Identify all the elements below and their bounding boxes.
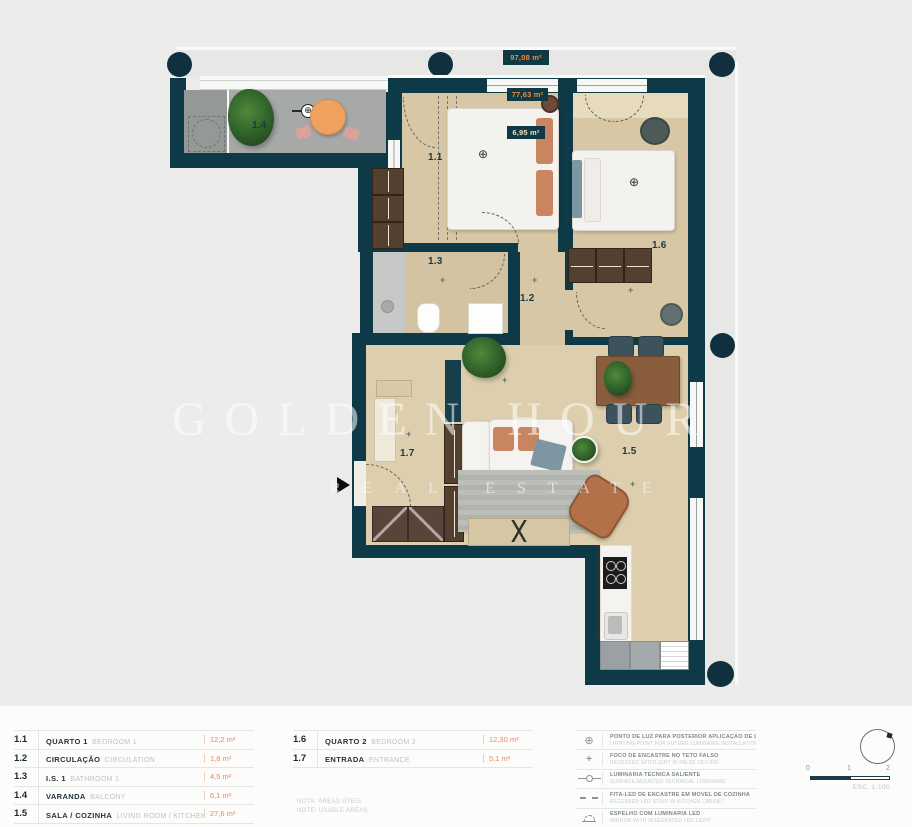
dining-chair <box>608 336 634 358</box>
table-centerpiece-plant <box>604 361 632 396</box>
recessed-spotlight-icon: + <box>502 376 507 385</box>
legend-pt: LUMINÁRIA TÉCNICA SALIENTE <box>610 772 756 779</box>
table-row: 1.7 ENTRADA ENTRANCE 5,1 m² <box>293 750 533 769</box>
dining-chair <box>638 336 664 358</box>
dining-chair <box>636 404 662 424</box>
table-row: 1.6 QUARTO 2 BEDROOM 2 12,30 m² <box>293 731 533 750</box>
room-table-2: 1.6 QUARTO 2 BEDROOM 2 12,30 m² 1.7 ENTR… <box>293 730 533 768</box>
scale-bar-filled <box>810 776 850 780</box>
room-area: 27,6 m² <box>204 809 254 818</box>
entry-closet <box>408 506 444 542</box>
room-label-1-7: 1.7 <box>400 448 415 459</box>
room-name: VARANDA BALCONY <box>38 786 204 804</box>
light-point-icon: ⊕ <box>629 176 639 188</box>
mirror-led-icon <box>576 813 602 822</box>
entry-closet <box>372 506 408 542</box>
terrace-edge-line-right <box>735 62 738 684</box>
balcony-plant <box>228 89 274 146</box>
stool <box>660 303 683 326</box>
room-label-1-2: 1.2 <box>520 293 535 304</box>
entry-door-opening <box>354 461 366 506</box>
table-decor <box>503 520 535 542</box>
balcony-table <box>310 99 346 135</box>
pillow <box>536 118 553 164</box>
note-line-en: NOTE: USABLE AREAS <box>297 807 368 816</box>
room-label-1-5: 1.5 <box>622 446 637 457</box>
scale-bar-outline <box>850 776 890 780</box>
terrace-strip-right <box>702 62 736 684</box>
structural-column <box>707 661 734 687</box>
sofa-chaise <box>462 421 492 476</box>
legend-text: LUMINÁRIA TÉCNICA SALIENTESURFACE-MOUNTE… <box>602 772 756 785</box>
wardrobe <box>624 248 652 283</box>
table-row: 1.5 SALA / COZINHA LIVING ROOM / KITCHEN… <box>14 805 254 824</box>
legend-text: FOCO DE ENCASTRE NO TETO FALSORECESSED S… <box>602 753 756 766</box>
room-name-pt: I.S. 1 <box>46 774 66 783</box>
room-number: 1.7 <box>293 753 317 764</box>
terrace-strip-top <box>176 50 736 77</box>
floor-plan-page: ⊕ 1.4 ⊕ 1.1 ⊕ + 1.6 1.3 + 1.2 + <box>0 0 912 827</box>
structural-column <box>710 333 735 358</box>
room-area: 6,1 m² <box>204 791 254 800</box>
room-name-en: LIVING ROOM / KITCHEN <box>117 813 204 820</box>
table-row: 1.2 CIRCULAÇÃO CIRCULATION 1,8 m² <box>14 750 254 769</box>
room-number: 1.1 <box>14 734 38 745</box>
room-name-pt: ENTRADA <box>325 755 364 764</box>
table-row: 1.3 I.S. 1 BATHROOM 1 4,5 m² <box>14 768 254 787</box>
led-strip-icon <box>598 545 599 640</box>
curtain-line <box>438 96 439 240</box>
potted-plant <box>570 436 598 463</box>
burner <box>606 561 616 571</box>
pillow <box>584 158 601 222</box>
room-area: 12,2 m² <box>204 735 254 744</box>
dining-chair <box>606 404 632 424</box>
equipment-outline-circle <box>192 119 221 148</box>
sink-basin <box>608 616 622 634</box>
room-name-pt: SALA / COZINHA <box>46 811 112 820</box>
room-name-pt: QUARTO 1 <box>46 737 88 746</box>
light-point-icon: ⊕ <box>576 734 602 747</box>
burner <box>616 574 626 584</box>
pillow <box>536 170 553 216</box>
door-opening <box>518 243 558 252</box>
burner <box>616 561 626 571</box>
appliance-oven <box>660 641 689 670</box>
symbols-legend: ⊕ PONTO DE LUZ PARA POSTERIOR APLICAÇÃO … <box>576 730 756 827</box>
coat-rack <box>376 380 412 397</box>
window <box>690 498 703 640</box>
room-area: 1,8 m² <box>204 754 254 763</box>
room-name: I.S. 1 BATHROOM 1 <box>38 768 204 786</box>
facade-line <box>388 75 705 78</box>
room-number: 1.5 <box>14 808 38 819</box>
room-name-en: CIRCULATION <box>105 757 155 764</box>
total-area-badge: 97,08 m² <box>503 50 549 65</box>
legend-row: LUMINÁRIA TÉCNICA SALIENTESURFACE-MOUNTE… <box>576 770 756 789</box>
table-row: 1.4 VARANDA BALCONY 6,1 m² <box>14 787 254 806</box>
partial-area-badge: 6,95 m² <box>507 126 545 139</box>
usable-area-badge: 77,63 m² <box>507 88 548 101</box>
recessed-spotlight-icon: + <box>630 480 635 489</box>
legend-row: FITA-LED DE ENCASTRE EM MÓVEL DE COZINHA… <box>576 789 756 808</box>
room-area: 12,30 m² <box>483 735 533 744</box>
legend-en: LIGHTING POINT FOR FUTURE LUMINAIRE INST… <box>610 741 756 747</box>
burner <box>606 574 616 584</box>
room-name: QUARTO 1 BEDROOM 1 <box>38 731 204 749</box>
room-area: 4,5 m² <box>204 772 254 781</box>
structural-column <box>428 52 453 77</box>
appliance-fridge <box>600 641 630 670</box>
surface-luminaire-icon <box>576 775 602 782</box>
room-number: 1.3 <box>14 771 38 782</box>
scale-tick-1: 1 <box>847 765 851 772</box>
room-name-pt: VARANDA <box>46 792 86 801</box>
legend-row: ESPELHO COM LUMINÁRIA LEDMIRROR WITH INT… <box>576 809 756 827</box>
room-name: SALA / COZINHA LIVING ROOM / KITCHEN <box>38 805 204 823</box>
toilet <box>417 303 440 333</box>
legend-pt: ESPELHO COM LUMINÁRIA LED <box>610 811 756 818</box>
scale-tick-0: 0 <box>806 765 810 772</box>
scale-label: ESC. 1:100 <box>846 784 890 791</box>
structural-column <box>709 52 735 77</box>
room-table-1: 1.1 QUARTO 1 BEDROOM 1 12,2 m² 1.2 CIRCU… <box>14 730 254 824</box>
legend-en: RECESSED SPOTLIGHT IN FALSE CEILING <box>610 760 756 766</box>
scale-tick-2: 2 <box>886 765 890 772</box>
legend-text: FITA-LED DE ENCASTRE EM MÓVEL DE COZINHA… <box>602 792 756 805</box>
recessed-spotlight-icon: + <box>440 276 445 285</box>
led-strip-icon <box>576 797 602 799</box>
structural-column <box>167 52 192 77</box>
appliance-dishwasher <box>630 641 660 670</box>
room-name-en: ENTRANCE <box>369 757 410 764</box>
legend-en: SURFACE-MOUNTED TECHNICAL LUMINAIRE <box>610 779 756 785</box>
wardrobe <box>372 222 404 249</box>
legend-en: MIRROR WITH INTEGRATED LED LIGHT <box>610 818 756 824</box>
room-area: 5,1 m² <box>483 754 533 763</box>
terrace-edge-line <box>176 47 736 50</box>
sofa-cushion <box>493 427 514 451</box>
room-label-1-3: 1.3 <box>428 256 443 267</box>
wardrobe <box>596 248 624 283</box>
room-name-en: BEDROOM 1 <box>92 739 137 746</box>
light-point-icon: ⊕ <box>478 148 488 160</box>
bed-throw <box>572 160 582 218</box>
shower-area <box>373 252 405 333</box>
note-line-pt: NOTA: ÁREAS ÚTEIS <box>297 798 368 807</box>
room-number: 1.4 <box>14 790 38 801</box>
window <box>690 382 703 447</box>
room-name-en: BALCONY <box>90 794 126 801</box>
room-name: ENTRADA ENTRANCE <box>317 749 483 767</box>
legend-row: ⊕ PONTO DE LUZ PARA POSTERIOR APLICAÇÃO … <box>576 731 756 750</box>
wardrobe <box>372 195 404 222</box>
wardrobe <box>568 248 596 283</box>
legend-text: ESPELHO COM LUMINÁRIA LEDMIRROR WITH INT… <box>602 811 756 824</box>
washbasin <box>468 303 503 334</box>
legend-text: PONTO DE LUZ PARA POSTERIOR APLICAÇÃO DE… <box>602 734 756 747</box>
entry-arrow-icon <box>337 477 350 493</box>
recessed-spotlight-icon: + <box>576 754 602 765</box>
wardrobe <box>372 168 404 195</box>
legend-row: + FOCO DE ENCASTRE NO TETO FALSORECESSED… <box>576 750 756 769</box>
room-label-1-4: 1.4 <box>252 120 267 131</box>
room-name-en: BATHROOM 1 <box>70 776 119 783</box>
legend-pt: FITA-LED DE ENCASTRE EM MÓVEL DE COZINHA <box>610 792 756 799</box>
legend-pt: FOCO DE ENCASTRE NO TETO FALSO <box>610 753 756 760</box>
room-number: 1.2 <box>14 753 38 764</box>
recessed-spotlight-icon: + <box>532 276 537 285</box>
room-label-1-1: 1.1 <box>428 152 443 163</box>
sideboard <box>374 398 396 462</box>
legend-en: RECESSED LED STRIP IN KITCHEN CABINET <box>610 799 756 805</box>
shower-drain <box>381 300 394 313</box>
partition-wall <box>445 360 461 422</box>
room-name-pt: QUARTO 2 <box>325 737 367 746</box>
window <box>577 79 647 92</box>
room-number: 1.6 <box>293 734 317 745</box>
table-row: 1.1 QUARTO 1 BEDROOM 1 12,2 m² <box>14 731 254 750</box>
room-name: CIRCULAÇÃO CIRCULATION <box>38 749 204 767</box>
room-label-1-6: 1.6 <box>652 240 667 251</box>
recessed-spotlight-icon: + <box>628 286 633 295</box>
room-name-en: BEDROOM 2 <box>371 739 416 746</box>
door-opening <box>558 290 573 330</box>
living-plant <box>462 337 506 378</box>
room-name-pt: CIRCULAÇÃO <box>46 755 100 764</box>
room-name: QUARTO 2 BEDROOM 2 <box>317 731 483 749</box>
recessed-spotlight-icon: + <box>406 430 411 439</box>
areas-note: NOTA: ÁREAS ÚTEIS NOTE: USABLE AREAS <box>297 798 368 816</box>
legend-pt: PONTO DE LUZ PARA POSTERIOR APLICAÇÃO DE… <box>610 734 756 741</box>
laundry-basket <box>640 117 670 145</box>
